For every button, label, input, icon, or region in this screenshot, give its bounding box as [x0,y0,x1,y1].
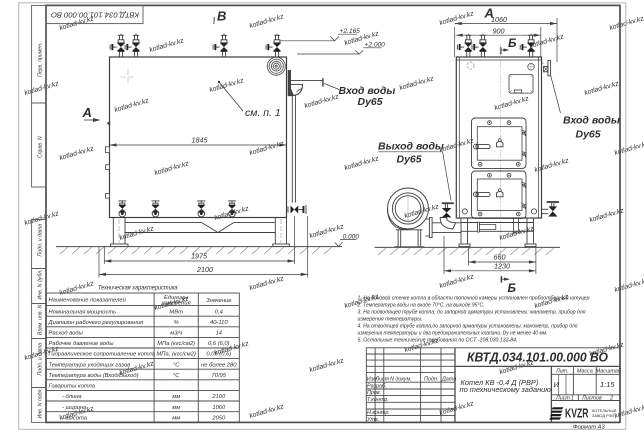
svg-text:мм: мм [172,394,180,400]
svg-text:Расход воды: Расход воды [49,331,84,337]
svg-text:ЗАВОД РЭП: ЗАВОД РЭП [592,413,614,418]
svg-text:Инв. N подл.: Инв. N подл. [38,388,44,418]
svg-text:°С: °С [173,362,180,368]
svg-text:4. На отводящей трубе котла,д: 4. На отводящей трубе котла,до запорной … [358,323,579,330]
svg-text:Б: Б [508,36,517,50]
svg-text:Перв. примен.: Перв. примен. [38,43,44,77]
svg-text:Т.контр.: Т.контр. [367,397,389,403]
svg-text:Рабочее давление воды: Рабочее давление воды [49,341,115,347]
svg-text:Температура воды (Вход/Выход): Температура воды (Вход/Выход) [49,373,139,379]
svg-text:1845: 1845 [192,136,209,145]
svg-text:Б: Б [508,281,517,295]
svg-text:Пров.: Пров. [367,390,381,396]
svg-text:Инв. N дубл.: Инв. N дубл. [38,269,44,299]
svg-text:2. Температура воды на входе: 2. Температура воды на входе 70°С, на вы… [357,303,485,309]
svg-text:Диапазон рабочего регулировани: Диапазон рабочего регулирования [48,320,144,326]
svg-text:по техническому заданию: по техническому заданию [460,385,552,394]
svg-text:70/95: 70/95 [212,373,227,379]
svg-text:1: 1 [571,396,574,402]
svg-text:3. На подводящей трубе котла,: 3. На подводящей трубе котла, до запорно… [358,309,587,316]
svg-text:МВт: МВт [169,309,183,315]
svg-text:- высота: - высота [62,415,88,421]
svg-text:1. На боковой стенке котла в: 1. На боковой стенке котла в области топ… [358,294,591,301]
svg-text:Выход воды: Выход воды [378,141,444,153]
svg-text:5. Остальные технические треб: 5. Остальные технические требования по О… [358,337,518,343]
svg-text:Подп.: Подп. [424,376,438,382]
svg-text:Листов: Листов [581,396,602,402]
svg-text:2050: 2050 [211,415,226,421]
svg-text:Утв.: Утв. [366,417,379,423]
svg-text:Взам. инв. N: Взам. инв. N [38,305,44,335]
svg-text:Температура уходящих газов: Температура уходящих газов [49,362,131,368]
svg-text:Лит.: Лит. [555,368,569,374]
svg-text:Вход воды: Вход воды [563,115,620,127]
svg-text:Формат А3: Формат А3 [573,424,605,430]
svg-text:2100: 2100 [211,394,226,400]
svg-text:1060: 1060 [491,15,507,24]
svg-text:В: В [217,9,226,24]
svg-text:Разраб.: Разраб. [367,384,387,390]
svg-text:А: А [82,105,92,120]
svg-text:Номинальная мощность: Номинальная мощность [49,309,117,315]
svg-text:Техническая характеристика: Техническая характеристика [98,285,178,292]
svg-text:+2.000: +2.000 [365,42,386,49]
svg-text:+2.165: +2.165 [340,28,361,35]
svg-text:Наименование показателей: Наименование показателей [49,297,127,304]
svg-text:0,6 (6,0): 0,6 (6,0) [208,341,230,347]
svg-text:Гидравлическое сопротивление к: Гидравлическое сопротивление котла [49,352,156,358]
svg-text:см. п. 1: см. п. 1 [245,107,281,119]
svg-text:КВТД.034.101.00.000 ВО: КВТД.034.101.00.000 ВО [51,10,139,19]
svg-text:- ширина: - ширина [62,405,87,411]
svg-text:1060: 1060 [212,405,226,411]
svg-text:Подп. и дата: Подп. и дата [38,224,44,257]
svg-text:14: 14 [216,331,222,337]
svg-text:мм: мм [172,405,180,411]
svg-text:Dy65: Dy65 [358,96,383,108]
svg-text:KVZR: KVZR [565,406,589,420]
svg-text:Говариты котла: Говариты котла [49,384,96,390]
svg-text:МПа (кгс/см2): МПа (кгс/см2) [157,341,195,347]
svg-text:Дата: Дата [441,376,456,382]
svg-text:1230: 1230 [494,262,510,271]
svg-text:0.000: 0.000 [343,233,360,240]
svg-text:Масса: Масса [577,368,593,374]
svg-text:1:15: 1:15 [600,380,615,389]
svg-text:м3/ч: м3/ч [170,331,182,337]
svg-text:Значение: Значение [206,298,232,304]
svg-text:Dy65: Dy65 [576,129,601,141]
svg-text:Подп. и дата: Подп. и дата [38,343,44,376]
svg-text:2100: 2100 [196,265,213,274]
svg-text:Масштаб: Масштаб [596,368,622,374]
svg-text:измерения температуры и два пр: измерения температуры и два предохраните… [358,331,548,337]
svg-text:0,4: 0,4 [215,309,223,315]
svg-text:0,06 (0,6): 0,06 (0,6) [206,352,231,358]
svg-text:МПа, (кгс/см2): МПа, (кгс/см2) [156,352,196,358]
svg-text:900: 900 [493,26,505,35]
svg-text:И: И [554,380,560,389]
svg-text:1975: 1975 [191,252,208,261]
svg-text:измерения температуры.: измерения температуры. [358,317,423,323]
svg-text:измерения: измерения [162,301,191,307]
svg-text:КВТД.034.101.00.000 ВО: КВТД.034.101.00.000 ВО [467,350,608,365]
svg-text:N докум.: N докум. [390,376,412,382]
svg-text:2: 2 [609,396,613,402]
svg-text:Лист: Лист [555,396,570,402]
svg-text:Лист: Лист [374,376,389,382]
svg-text:°С: °С [173,373,180,379]
svg-text:Справ. N: Справ. N [38,136,44,158]
svg-text:660: 660 [494,253,506,262]
svg-text:%: % [174,320,179,326]
svg-text:Н.контр.: Н.контр. [367,410,390,416]
svg-text:- длина: - длина [62,394,82,400]
svg-text:Dy65: Dy65 [397,154,422,166]
svg-text:мм: мм [172,415,180,421]
svg-text:40-110: 40-110 [210,320,228,326]
svg-text:не более 280: не более 280 [201,362,237,368]
